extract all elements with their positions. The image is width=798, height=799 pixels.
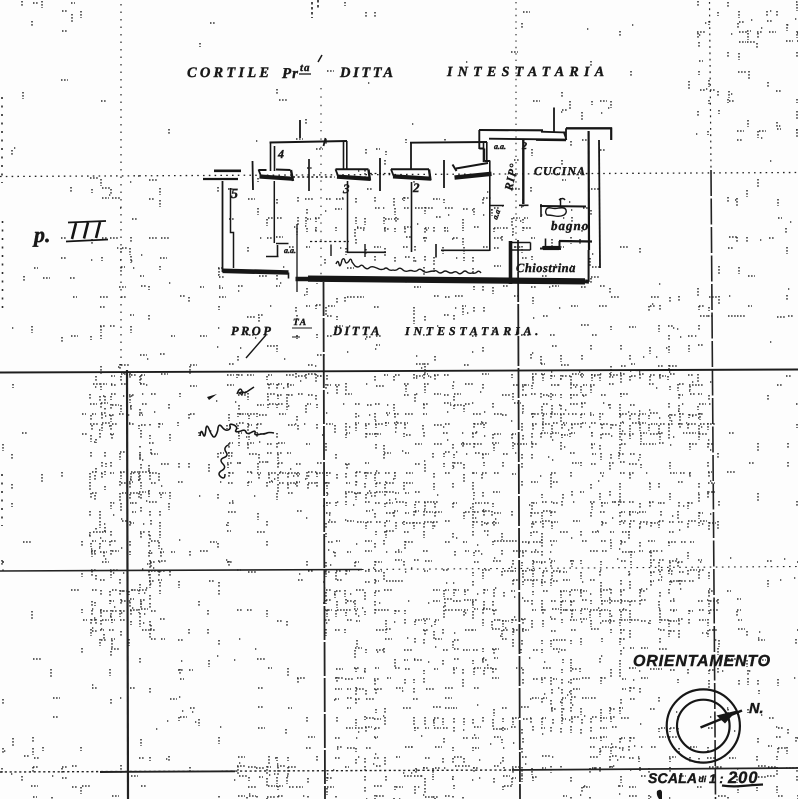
svg-text:PROP: PROP — [231, 324, 273, 338]
svg-text:1 :: 1 : — [709, 772, 724, 786]
svg-text:ORIENTAMENTO: ORIENTAMENTO — [633, 653, 771, 670]
svg-text:CUCINA: CUCINA — [534, 164, 586, 178]
svg-text:p.: p. — [32, 222, 51, 247]
svg-text:DITTA: DITTA — [332, 324, 382, 338]
svg-text:4: 4 — [277, 147, 284, 161]
svg-text:2: 2 — [412, 180, 420, 195]
svg-text:SCALA: SCALA — [648, 770, 697, 786]
svg-text:INTESTATARIA.: INTESTATARIA. — [404, 324, 542, 338]
svg-text:2: 2 — [521, 141, 527, 152]
svg-text:N.: N. — [749, 701, 764, 717]
svg-text:di: di — [699, 774, 707, 784]
svg-text:Chiostrina: Chiostrina — [516, 261, 576, 275]
svg-text:a.a.: a.a. — [284, 246, 296, 255]
svg-text:bagno: bagno — [551, 218, 589, 233]
svg-text:a.a.: a.a. — [494, 142, 506, 151]
svg-text:3: 3 — [342, 181, 350, 196]
svg-text:Pr: Pr — [282, 66, 299, 82]
svg-text:DITTA: DITTA — [339, 65, 396, 81]
svg-text:5: 5 — [231, 187, 238, 202]
svg-text:INTESTATARIA: INTESTATARIA — [446, 65, 609, 80]
svg-text:CORTILE: CORTILE — [187, 65, 272, 81]
svg-text:ta: ta — [300, 62, 311, 74]
svg-text:TA: TA — [293, 318, 308, 328]
